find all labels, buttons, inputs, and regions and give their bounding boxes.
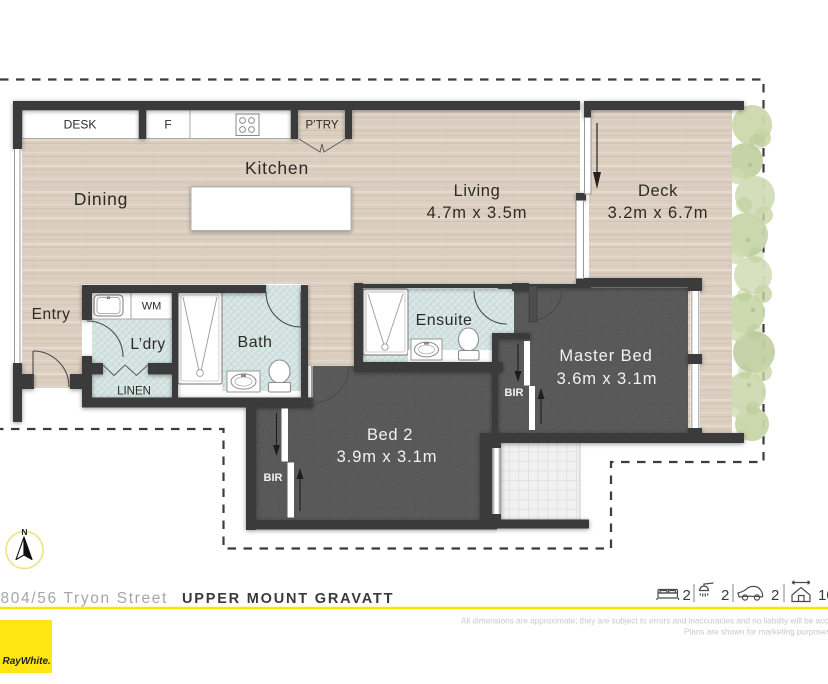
svg-text:2: 2: [771, 587, 779, 604]
svg-text:N: N: [21, 527, 27, 537]
svg-text:10: 10: [818, 587, 828, 604]
svg-text:Deck: Deck: [638, 182, 678, 200]
svg-text:3.2m x 6.7m: 3.2m x 6.7m: [608, 204, 709, 222]
svg-text:2: 2: [721, 587, 729, 604]
svg-text:Plans are shown for marketing: Plans are shown for marketing purposes: [684, 628, 828, 637]
svg-text:UPPER MOUNT GRAVATT: UPPER MOUNT GRAVATT: [182, 591, 394, 607]
svg-text:WM: WM: [142, 301, 162, 313]
svg-text:F: F: [164, 118, 171, 132]
svg-text:Kitchen: Kitchen: [245, 158, 309, 178]
svg-text:3.9m x 3.1m: 3.9m x 3.1m: [337, 448, 438, 466]
svg-text:Dining: Dining: [74, 189, 128, 209]
svg-text:LINEN: LINEN: [117, 386, 151, 398]
svg-text:Living: Living: [454, 182, 501, 200]
svg-text:DESK: DESK: [64, 118, 97, 132]
svg-text:Entry: Entry: [32, 306, 71, 323]
svg-text:Bed 2: Bed 2: [367, 426, 413, 444]
svg-text:2: 2: [683, 587, 691, 604]
svg-text:Master Bed: Master Bed: [559, 347, 652, 365]
svg-text:P’TRY: P’TRY: [305, 120, 338, 132]
svg-text:BIR: BIR: [264, 472, 283, 484]
svg-text:804/56 Tryon Street: 804/56 Tryon Street: [1, 590, 169, 607]
svg-text:BIR: BIR: [505, 387, 524, 399]
svg-text:L’dry: L’dry: [130, 336, 165, 353]
svg-text:3.6m x 3.1m: 3.6m x 3.1m: [557, 370, 658, 388]
svg-text:Bath: Bath: [238, 334, 273, 351]
svg-text:Ensuite: Ensuite: [416, 312, 473, 329]
svg-text:RayWhite.: RayWhite.: [3, 656, 51, 667]
svg-text:4.7m x 3.5m: 4.7m x 3.5m: [427, 204, 528, 222]
svg-text:All dimensions are approximate: All dimensions are approximate; they are…: [461, 617, 828, 626]
